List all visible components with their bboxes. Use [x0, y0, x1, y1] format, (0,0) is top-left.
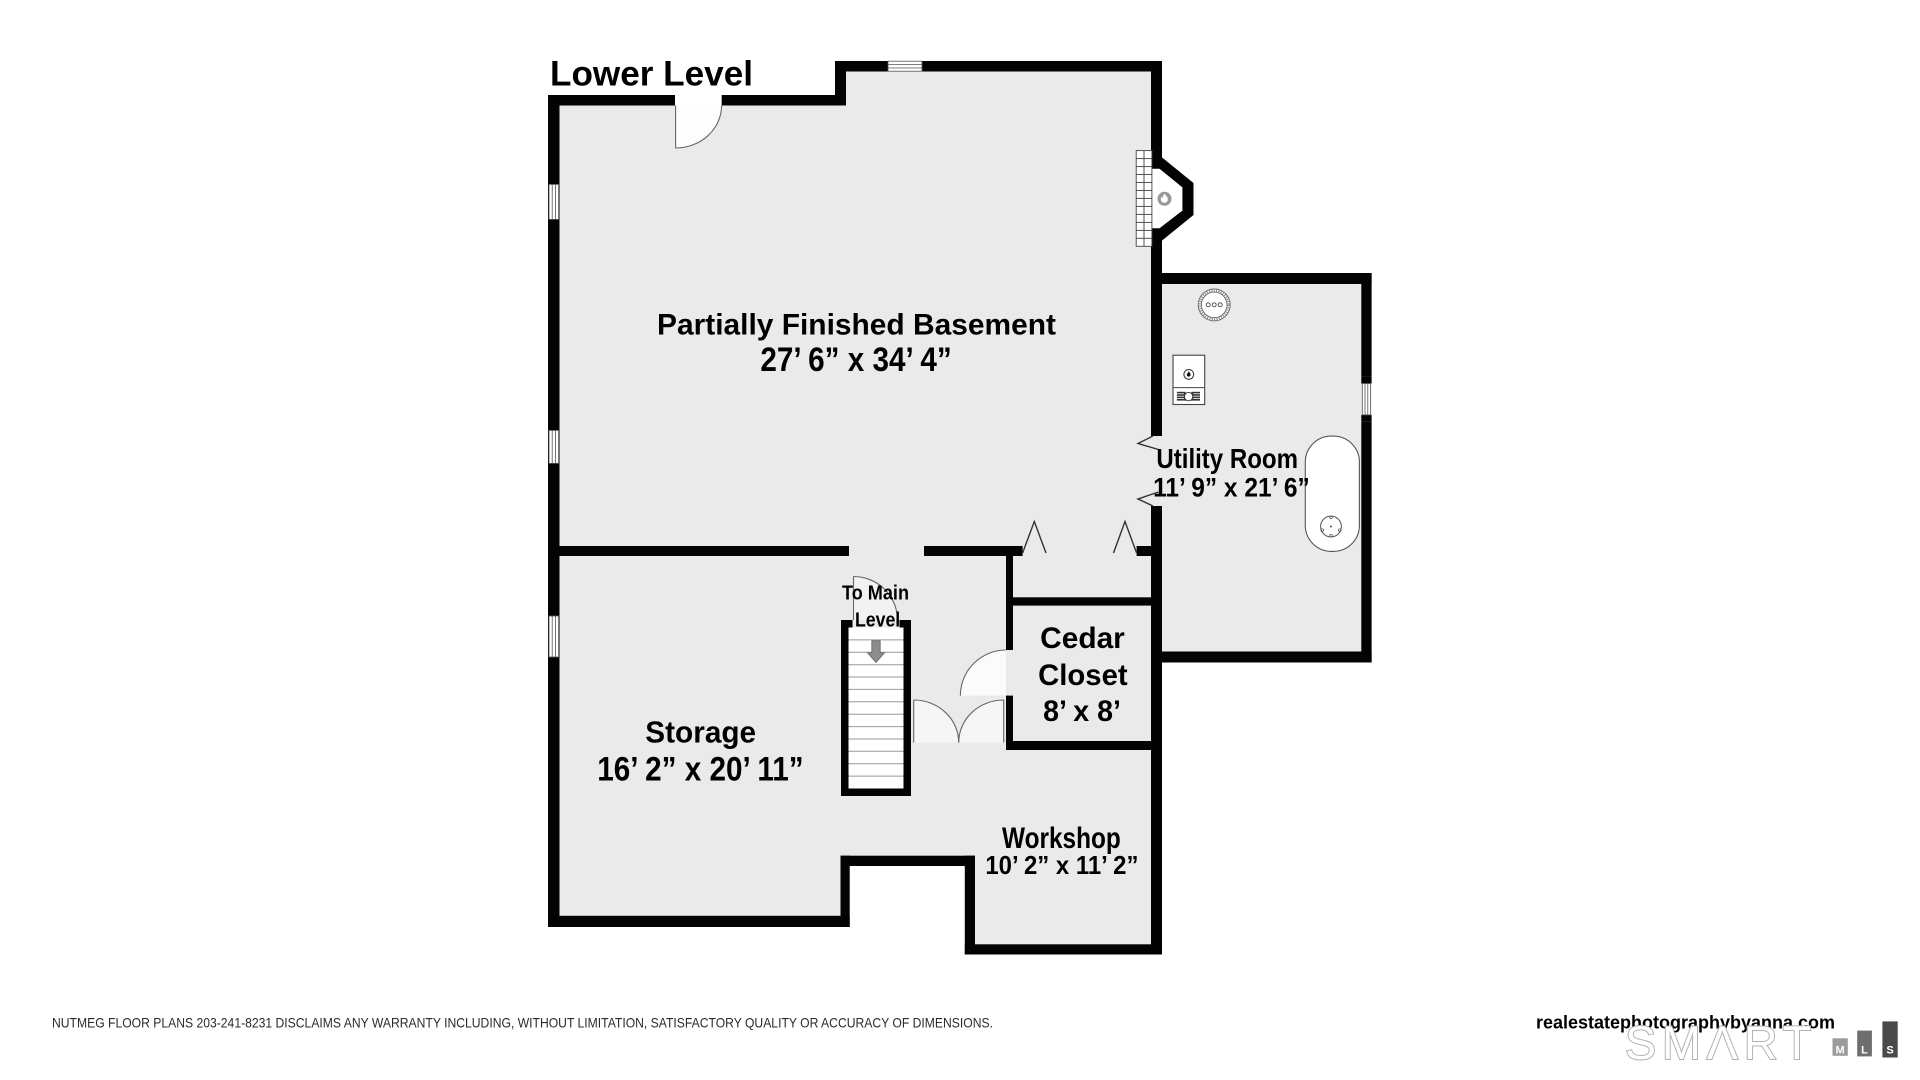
svg-text:S: S	[1886, 1045, 1893, 1057]
svg-text:8’ x 8’: 8’ x 8’	[1043, 695, 1121, 728]
svg-text:SMΛRT: SMΛRT	[1625, 1016, 1817, 1069]
svg-text:NUTMEG FLOOR PLANS 203-241-823: NUTMEG FLOOR PLANS 203-241-8231 DISCLAIM…	[52, 1015, 993, 1030]
svg-text:10’ 2” x 11’ 2”: 10’ 2” x 11’ 2”	[985, 850, 1138, 880]
svg-text:27’ 6” x 34’ 4”: 27’ 6” x 34’ 4”	[760, 341, 951, 379]
svg-text:To Main: To Main	[842, 583, 909, 605]
svg-text:Partially Finished Basement: Partially Finished Basement	[657, 308, 1056, 341]
svg-text:16’ 2” x 20’ 11”: 16’ 2” x 20’ 11”	[597, 750, 803, 788]
svg-text:Closet: Closet	[1038, 659, 1128, 692]
svg-text:M: M	[1836, 1045, 1845, 1057]
svg-text:Cedar: Cedar	[1040, 622, 1125, 655]
svg-text:L: L	[1861, 1045, 1868, 1057]
svg-text:11’ 9” x 21’ 6”: 11’ 9” x 21’ 6”	[1153, 472, 1310, 502]
svg-text:Lower Level: Lower Level	[550, 54, 753, 94]
svg-text:Utility Room: Utility Room	[1156, 443, 1298, 474]
svg-text:Level: Level	[855, 610, 900, 632]
svg-text:Storage: Storage	[645, 715, 756, 750]
